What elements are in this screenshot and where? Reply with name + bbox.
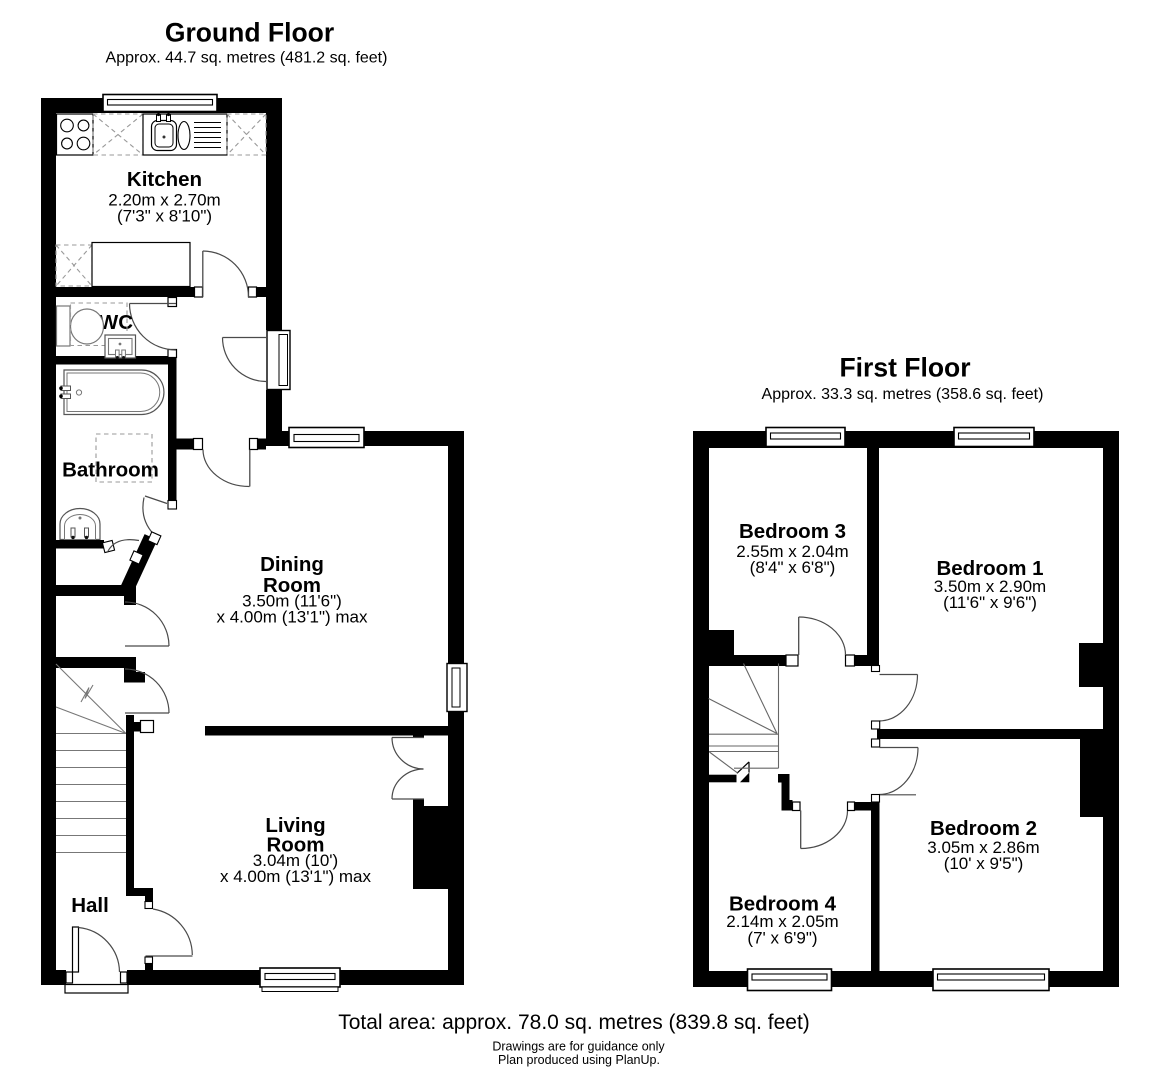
svg-text:(10' x 9'5"): (10' x 9'5") [944, 854, 1024, 873]
svg-text:Ground Floor: Ground Floor [165, 18, 334, 48]
svg-text:(11'6" x 9'6"): (11'6" x 9'6") [943, 593, 1037, 612]
svg-text:(8'4" x 6'8"): (8'4" x 6'8") [750, 558, 836, 577]
svg-text:Plan produced using PlanUp.: Plan produced using PlanUp. [498, 1053, 660, 1067]
svg-text:First Floor: First Floor [839, 353, 970, 383]
svg-text:Bedroom 2: Bedroom 2 [930, 817, 1037, 840]
svg-text:Approx. 44.7 sq. metres (481.2: Approx. 44.7 sq. metres (481.2 sq. feet) [106, 50, 388, 67]
svg-text:x 4.00m (13'1") max: x 4.00m (13'1") max [220, 867, 371, 886]
svg-text:WC: WC [99, 311, 133, 334]
svg-text:x 4.00m (13'1") max: x 4.00m (13'1") max [217, 608, 368, 627]
svg-text:Approx. 33.3 sq. metres (358.6: Approx. 33.3 sq. metres (358.6 sq. feet) [762, 386, 1044, 403]
svg-text:(7'3" x 8'10"): (7'3" x 8'10") [117, 207, 212, 226]
svg-text:(7' x 6'9"): (7' x 6'9") [747, 929, 817, 948]
svg-text:Bedroom 3: Bedroom 3 [739, 520, 846, 543]
svg-text:Dining: Dining [260, 553, 324, 576]
svg-text:Hall: Hall [71, 894, 109, 917]
svg-text:Total area: approx. 78.0 sq. m: Total area: approx. 78.0 sq. metres (839… [338, 1011, 810, 1034]
svg-text:Bathroom: Bathroom [62, 459, 159, 482]
svg-text:Drawings are for guidance only: Drawings are for guidance only [492, 1040, 665, 1054]
svg-text:Kitchen: Kitchen [127, 168, 202, 191]
